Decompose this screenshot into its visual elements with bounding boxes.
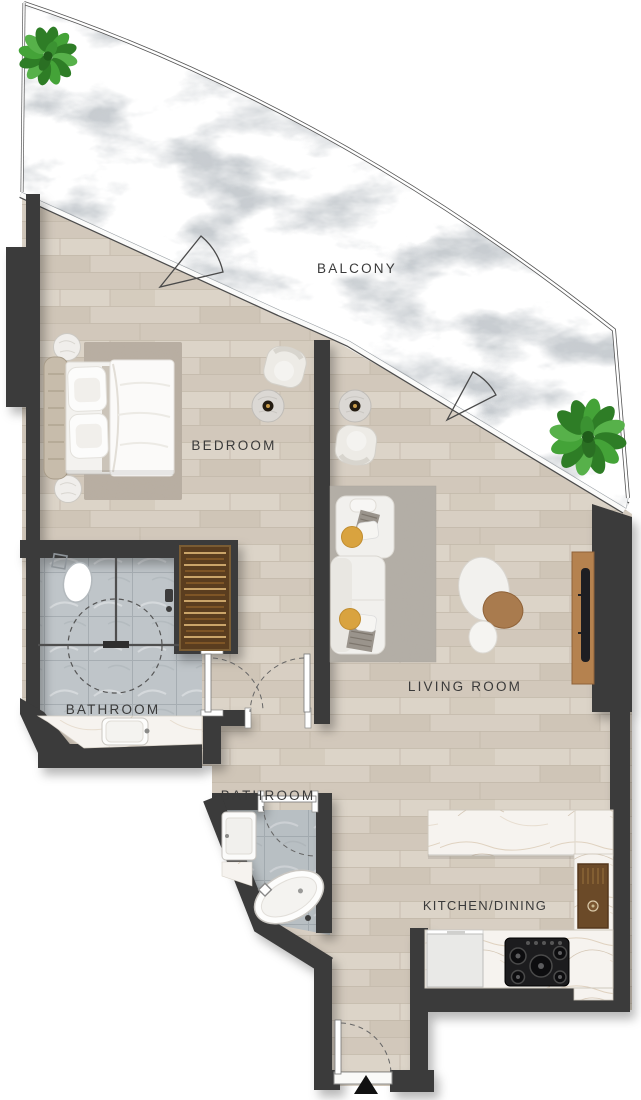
room-label-living-room: LIVING ROOM bbox=[408, 679, 522, 694]
room-label-balcony: BALCONY bbox=[317, 261, 397, 276]
nightstand bbox=[54, 334, 81, 361]
kitchen-appliance bbox=[427, 930, 483, 987]
entry-door-leaf bbox=[335, 1020, 341, 1074]
wardrobe bbox=[180, 546, 230, 650]
yellow-pillow bbox=[340, 609, 361, 630]
room-label-bathroom-1: BATHROOM bbox=[66, 702, 161, 717]
headboard bbox=[44, 357, 68, 479]
room-label-bathroom-2: BATHROOM bbox=[221, 788, 316, 803]
corner-sofa bbox=[331, 496, 394, 654]
nightstand bbox=[55, 476, 82, 503]
living-armchair bbox=[334, 424, 378, 467]
floor-plan-svg: BALCONY BEDROOM BATHROOM BATHROOM LIVING… bbox=[0, 0, 641, 1100]
cooktop bbox=[505, 938, 569, 986]
kitchen-island bbox=[428, 810, 613, 859]
tub-faucet bbox=[305, 915, 311, 921]
room-label-bedroom: BEDROOM bbox=[191, 438, 276, 453]
shower-head-icon bbox=[165, 589, 173, 612]
door-leaf-bedroom-hall bbox=[304, 654, 310, 712]
room-label-kitchen-dining: KITCHEN/DINING bbox=[423, 898, 547, 913]
duvet bbox=[110, 360, 174, 476]
door-leaf-bathroom-1 bbox=[205, 654, 211, 712]
kitchen-sink-unit bbox=[578, 864, 608, 928]
living-side-table bbox=[339, 390, 371, 422]
vanity-sink bbox=[102, 718, 150, 745]
yellow-pillow bbox=[342, 527, 363, 548]
bedroom-side-table bbox=[252, 390, 284, 422]
double-bed bbox=[44, 357, 174, 479]
washbasin bbox=[222, 812, 256, 886]
floor-plan: BALCONY BEDROOM BATHROOM BATHROOM LIVING… bbox=[0, 0, 641, 1100]
